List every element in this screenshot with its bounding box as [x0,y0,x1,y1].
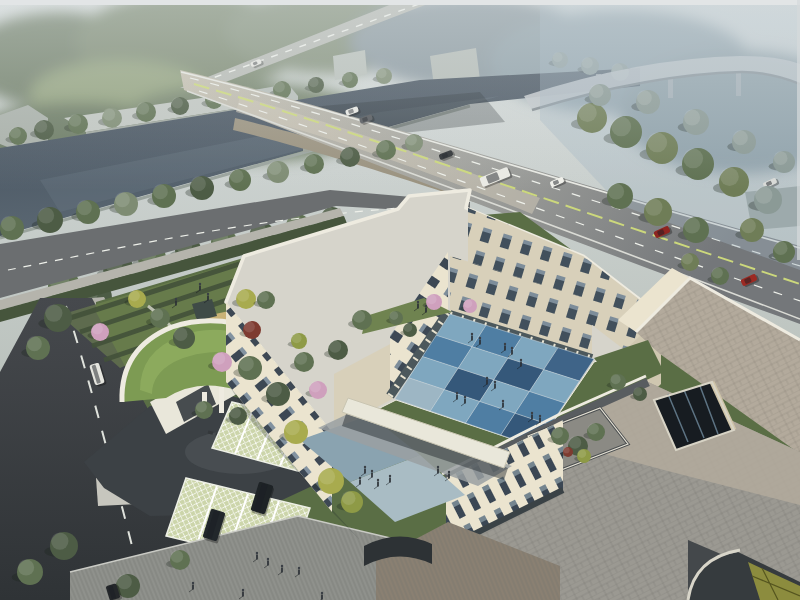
tree-highlight [634,387,643,396]
tree-highlight [196,401,207,412]
tree-highlight [230,407,241,418]
tree-highlight [464,299,473,308]
tree-highlight [552,427,563,438]
tree-highlight [77,200,92,215]
person-head [502,400,504,402]
tree-highlight [774,241,788,255]
tree-highlight [174,327,188,341]
person-head [207,293,209,295]
tree-highlight [329,340,341,352]
tree-highlight [353,310,365,322]
tree-highlight [171,550,183,562]
tree-highlight [92,323,103,334]
tree-highlight [712,267,723,278]
tree-highlight [569,436,581,448]
person-head [377,479,379,481]
tree-highlight [267,382,282,397]
person-head [192,582,194,584]
tree-highlight [51,532,68,549]
person-head [437,466,439,468]
person-head [471,333,473,335]
tree-highlight [244,321,255,332]
tree-highlight [151,308,163,320]
person-head [267,558,269,560]
person-head [298,567,300,569]
tree-highlight [285,420,300,435]
tree-highlight [129,290,140,301]
tree-highlight [45,304,62,321]
person-head [520,359,522,361]
tree-highlight [1,216,16,231]
tree-highlight [27,336,42,351]
tree-highlight [239,356,254,371]
tree-highlight [427,294,437,304]
tree-highlight [310,381,321,392]
tree-highlight [117,574,132,589]
tree-highlight [390,311,399,320]
person-head [504,343,506,345]
tree-highlight [645,198,662,215]
person-head [464,396,466,398]
person-head [531,412,533,414]
top-edge-strip [0,0,800,5]
tree-highlight [404,323,413,332]
tree-highlight [258,291,269,302]
tree-highlight [563,447,569,453]
tree-highlight [237,289,249,301]
tree-highlight [588,423,599,434]
person-head [479,337,481,339]
rendering-canvas [0,0,800,600]
person-head [175,298,177,300]
person-head [242,589,244,591]
person-head [456,392,458,394]
tree-highlight [578,449,587,458]
person-head [371,470,373,472]
person-head [364,466,366,468]
aerial-rendering [0,0,800,600]
person-head [486,377,488,379]
tree-highlight [115,192,130,207]
person-head [425,305,427,307]
person-head [539,415,541,417]
person-head [321,592,323,594]
tree-highlight [741,218,756,233]
person-head [511,347,513,349]
person-head [199,283,201,285]
tree-highlight [611,374,621,384]
tree-highlight [213,352,225,364]
person-head [389,475,391,477]
tree-highlight [18,559,34,575]
gate-pillar [219,387,224,413]
tree-highlight [342,491,356,505]
atmospheric-haze-top [0,0,800,190]
tree-highlight [319,468,335,484]
tree-highlight [292,333,302,343]
person-head [256,552,258,554]
person-head [417,301,419,303]
tree-highlight [684,217,700,233]
tree-highlight [295,352,307,364]
person-head [359,477,361,479]
person-head [494,381,496,383]
tree-highlight [38,207,54,223]
person-head [448,471,450,473]
person-head [281,565,283,567]
tree-highlight [682,253,693,264]
